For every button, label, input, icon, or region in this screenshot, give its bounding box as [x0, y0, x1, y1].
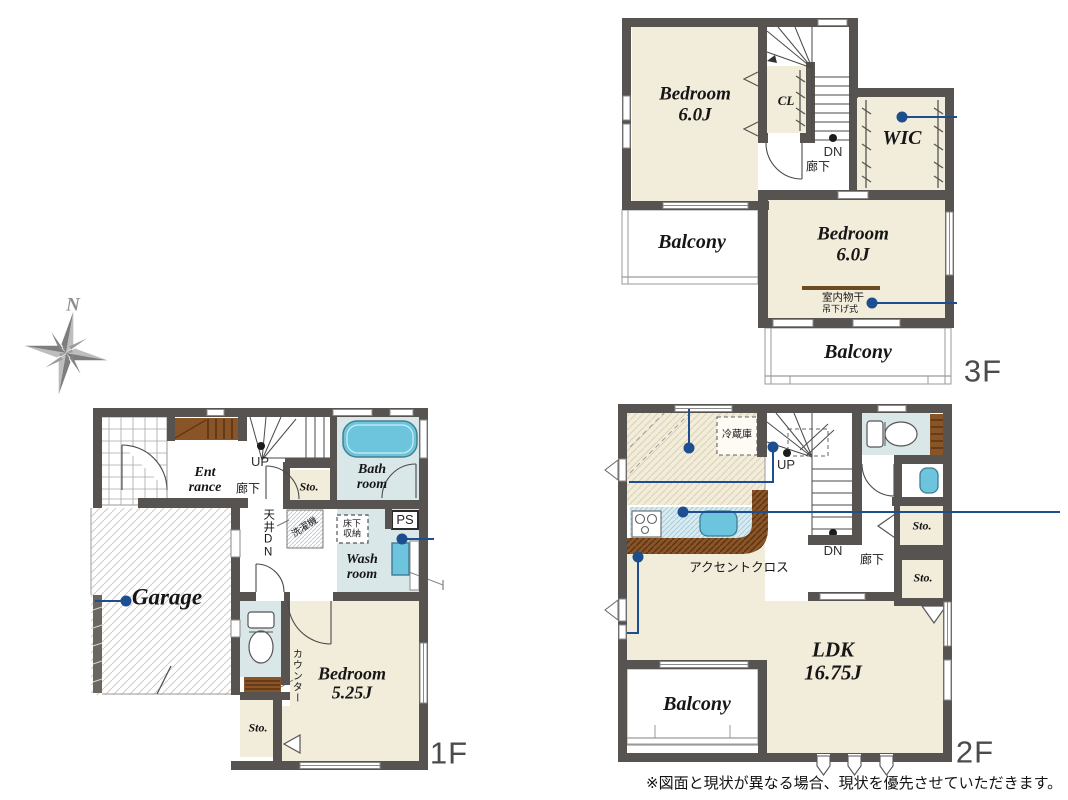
toilet-2f [867, 421, 917, 447]
room-label-sto-bottom-1f: Sto. [248, 722, 267, 735]
washroom-sink [392, 543, 409, 575]
label-underfloor-storage: 床下収納 [343, 519, 361, 538]
toilet-shelf [930, 414, 944, 455]
label-counter: カウンター [290, 649, 301, 704]
bathtub [343, 421, 417, 457]
floor-label-1f: 1F [430, 736, 468, 769]
label-ps: PS [396, 513, 413, 527]
room-label-balcony-2f: Balcony [663, 694, 731, 716]
room-label-washroom: Washroom [346, 552, 378, 582]
stair-label-up-1f: UP [251, 455, 269, 469]
label-indoor-drying: 室内物干 [822, 292, 864, 303]
room-label-garage: Garage [132, 586, 202, 611]
floor-label-2f: 2F [956, 735, 994, 768]
room-label-wic: WIC [883, 128, 922, 150]
room-label-balcony-bottom-3f: Balcony [824, 342, 892, 364]
indoor-drying-bar [802, 286, 880, 290]
label-ceiling-dn: 天井DN [262, 509, 274, 560]
room-label-hall-1f: 廊下 [236, 483, 260, 496]
room-label-sto2-2f: Sto. [913, 572, 932, 585]
floorplan-canvas [0, 0, 1068, 800]
room-label-sto-center-1f: Sto. [299, 481, 318, 494]
compass-north-label: N [66, 296, 80, 317]
garage-block-wall [93, 595, 102, 693]
label-hanging-type: 吊下げ式 [822, 305, 858, 315]
label-refrigerator: 冷蔵庫 [722, 431, 752, 442]
room-label-cl: CL [778, 94, 795, 108]
room-label-balcony-left-3f: Balcony [658, 232, 726, 254]
room-label-bathroom: Bathroom [357, 462, 387, 492]
floorplan-page: N Bedroom6.0J CL WIC DN 廊下 Balcony Bedro… [0, 0, 1068, 800]
plan-2f [605, 404, 1060, 775]
label-accent-cloth: アクセントクロス [689, 561, 788, 575]
room-label-entrance: Entrance [189, 465, 222, 495]
room-label-hall-3f: 廊下 [806, 161, 830, 174]
stair-label-dn-3f: DN [824, 145, 843, 159]
stair-label-dn-2f: DN [824, 544, 843, 558]
floor-label-3f: 3F [964, 354, 1002, 387]
compass-rose [17, 304, 114, 401]
room-label-hall-2f: 廊下 [860, 554, 884, 567]
room-label-bedroom-1f: Bedroom5.25J [318, 665, 386, 704]
room-label-bedroom2-3f: Bedroom6.0J [817, 224, 889, 265]
entrance-porch [97, 417, 167, 505]
stair-label-up-2f: UP [777, 458, 795, 472]
disclaimer-text: ※図面と現状が異なる場合、現状を優先させていただきます。 [646, 772, 1062, 793]
toilet-1f [248, 612, 274, 663]
plan-3f [622, 18, 957, 384]
room-label-ldk: LDK16.75J [804, 638, 862, 683]
hall-basin [920, 468, 938, 493]
room-label-bedroom1-3f: Bedroom6.0J [659, 84, 731, 125]
room-label-sto1-2f: Sto. [912, 520, 931, 533]
entrance-step [172, 418, 240, 440]
